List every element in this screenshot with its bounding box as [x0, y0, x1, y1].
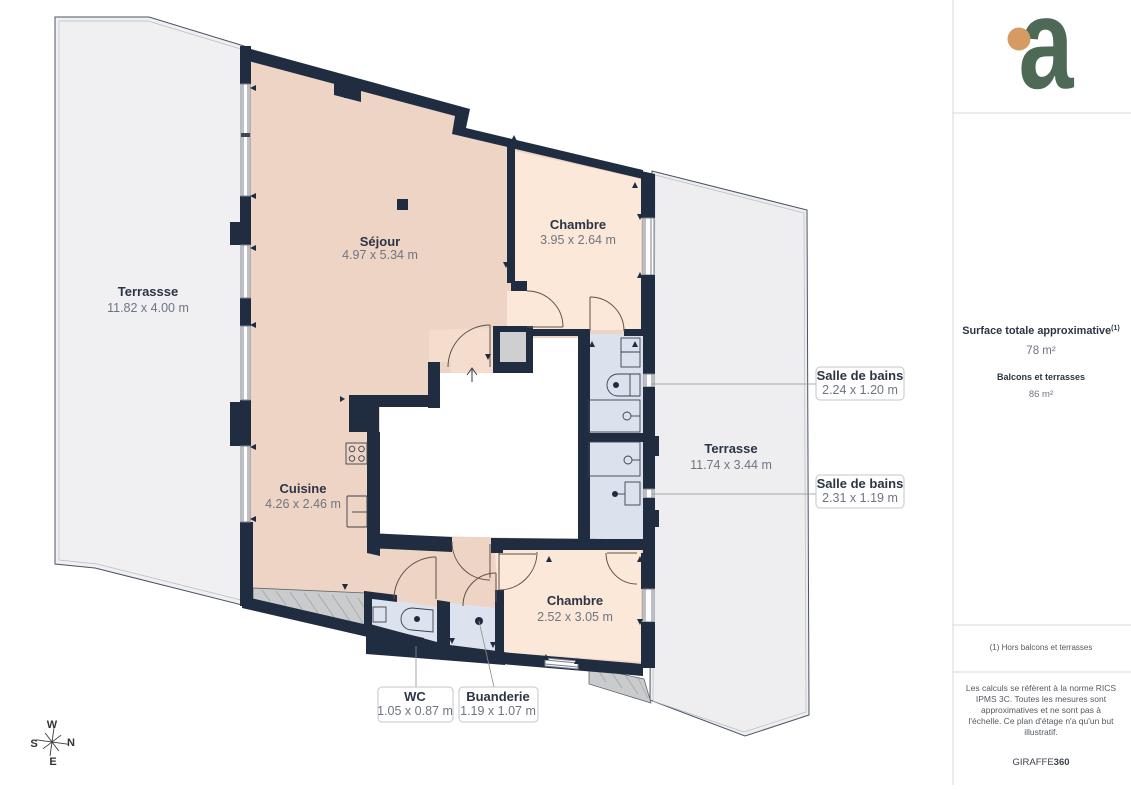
svg-text:2.52 x 3.05 m: 2.52 x 3.05 m [537, 610, 613, 624]
svg-text:Cuisine: Cuisine [280, 481, 327, 496]
svg-text:illustratif.: illustratif. [1024, 727, 1058, 737]
svg-text:2.24 x 1.20 m: 2.24 x 1.20 m [822, 383, 898, 397]
svg-text:Salle de bains: Salle de bains [817, 368, 904, 383]
svg-text:2.31 x 1.19 m: 2.31 x 1.19 m [822, 491, 898, 505]
svg-text:WC: WC [404, 689, 426, 704]
svg-text:Chambre: Chambre [550, 217, 606, 232]
svg-text:Terrassse: Terrassse [118, 284, 178, 299]
svg-text:GIRAFFE360: GIRAFFE360 [1012, 757, 1069, 768]
svg-text:E: E [49, 756, 56, 768]
svg-text:4.26 x 2.46 m: 4.26 x 2.46 m [265, 497, 341, 511]
svg-text:3.95 x 2.64 m: 3.95 x 2.64 m [540, 233, 616, 247]
svg-text:1.19 x 1.07 m: 1.19 x 1.07 m [460, 704, 536, 718]
svg-text:11.74 x 3.44 m: 11.74 x 3.44 m [690, 458, 772, 472]
svg-text:Balcons et terrasses: Balcons et terrasses [997, 372, 1085, 382]
svg-text:Les calculs se réfèrent à la n: Les calculs se réfèrent à la norme RICS [966, 683, 1117, 693]
svg-text:4.97 x 5.34 m: 4.97 x 5.34 m [342, 248, 418, 262]
svg-text:Terrasse: Terrasse [704, 441, 757, 456]
svg-text:IPMS 3C. Toutes les mesures so: IPMS 3C. Toutes les mesures sont [976, 694, 1107, 704]
svg-text:a: a [1019, 0, 1075, 116]
svg-text:l'échelle. Ce plan d'étage n'a: l'échelle. Ce plan d'étage n'a qu'un but [969, 716, 1115, 726]
svg-text:approximatives et ne sont pas: approximatives et ne sont pas à [981, 705, 1101, 715]
svg-text:Chambre: Chambre [547, 593, 603, 608]
svg-text:N: N [67, 737, 75, 749]
svg-text:78 m²: 78 m² [1026, 345, 1056, 357]
svg-text:(1) Hors balcons et terrasses: (1) Hors balcons et terrasses [990, 643, 1093, 652]
svg-text:86 m²: 86 m² [1029, 389, 1053, 400]
svg-text:Séjour: Séjour [360, 234, 400, 249]
svg-text:Surface totale approximative(1: Surface totale approximative(1) [962, 325, 1119, 337]
svg-text:S: S [30, 738, 37, 750]
svg-text:Buanderie: Buanderie [466, 689, 530, 704]
svg-text:1.05 x 0.87 m: 1.05 x 0.87 m [377, 704, 453, 718]
svg-text:W: W [47, 719, 58, 731]
svg-text:Salle de bains: Salle de bains [817, 476, 904, 491]
svg-text:11.82 x 4.00 m: 11.82 x 4.00 m [107, 301, 189, 315]
